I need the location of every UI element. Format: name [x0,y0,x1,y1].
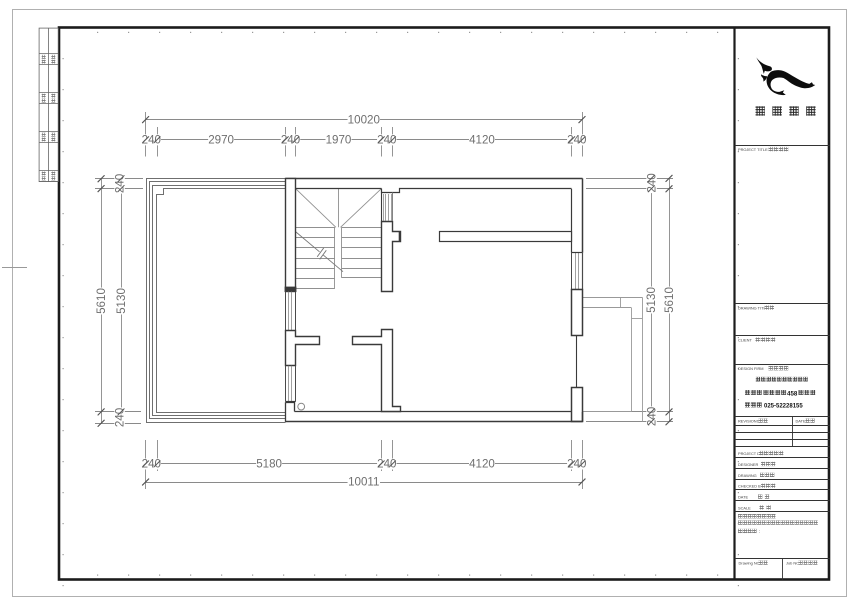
svg-text:DRAWING TITLE: DRAWING TITLE [738,306,769,311]
svg-text:240: 240 [281,133,300,146]
svg-text:PROJECT TITLE: PROJECT TITLE [738,147,768,152]
svg-text:10020: 10020 [348,113,380,126]
svg-text:5610: 5610 [663,287,676,313]
svg-text:DESIGN FIRM: DESIGN FIRM [738,366,764,371]
svg-text:10011: 10011 [348,476,379,489]
svg-text:5130: 5130 [115,288,128,314]
svg-text:240: 240 [645,407,658,426]
svg-text:240: 240 [645,173,658,192]
svg-text:2970: 2970 [208,133,234,146]
svg-text:DESIGNER: DESIGNER [738,462,759,467]
svg-text:Job NO: Job NO [786,561,799,566]
svg-text:Drawing NO: Drawing NO [739,561,760,566]
svg-text:240: 240 [567,458,586,471]
svg-text:025-52228155: 025-52228155 [764,404,803,410]
svg-text:CHECKED BY: CHECKED BY [738,484,764,489]
svg-text:1970: 1970 [326,133,352,146]
svg-text:SCALE: SCALE [738,505,751,510]
svg-text:DATE: DATE [738,495,748,500]
svg-text:4120: 4120 [469,133,495,146]
svg-text:REVISIONS: REVISIONS [738,419,760,424]
svg-text:240: 240 [377,133,396,146]
svg-text:DRAWING: DRAWING [738,473,757,478]
svg-text:DATE: DATE [796,419,806,424]
svg-text:240: 240 [142,458,161,471]
svg-text:240: 240 [142,133,161,146]
svg-text:5610: 5610 [95,288,108,314]
svg-text:240: 240 [113,408,126,427]
svg-text:458: 458 [787,390,798,397]
svg-text:5180: 5180 [256,458,282,471]
svg-text:240: 240 [567,133,586,146]
svg-text:5130: 5130 [645,287,658,313]
svg-text:240: 240 [377,458,396,471]
svg-text::: : [759,530,760,535]
svg-text:CLIENT: CLIENT [738,338,752,343]
svg-text:4120: 4120 [469,458,495,471]
